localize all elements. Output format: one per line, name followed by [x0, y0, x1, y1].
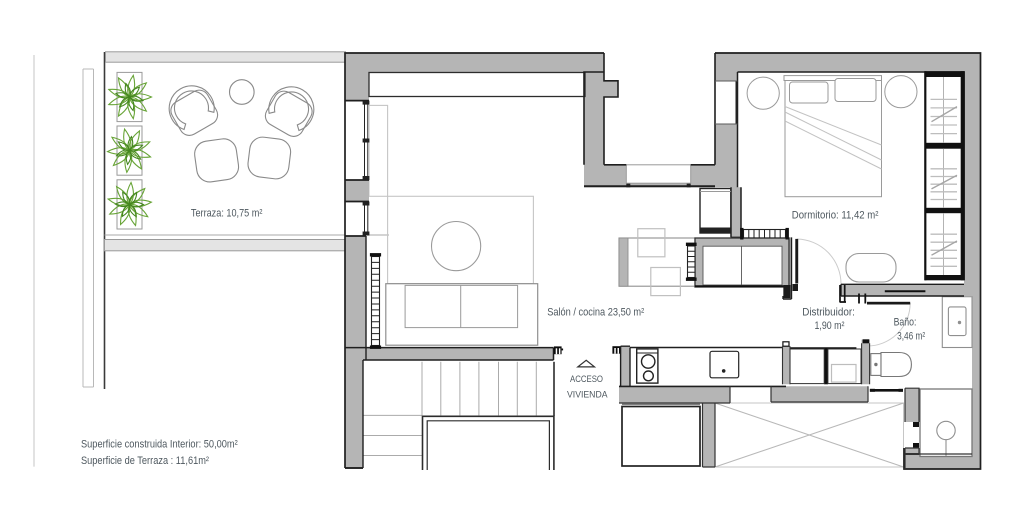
svg-text:Distribuidor:: Distribuidor: — [802, 306, 855, 318]
svg-text:Superficie construida Interior: Superficie construida Interior: 50,00m² — [81, 439, 238, 451]
svg-text:VIVIENDA: VIVIENDA — [567, 389, 608, 400]
svg-text:Superficie de Terraza : 11,61m: Superficie de Terraza : 11,61m² — [81, 455, 209, 467]
svg-text:ACCESO: ACCESO — [570, 374, 603, 385]
svg-text:Terraza: 10,75 m²: Terraza: 10,75 m² — [191, 207, 263, 219]
svg-text:Salón / cocina 23,50 m²: Salón / cocina 23,50 m² — [547, 307, 644, 319]
svg-text:Dormitorio: 11,42 m²: Dormitorio: 11,42 m² — [792, 210, 879, 222]
svg-text:Baño:: Baño: — [894, 317, 917, 329]
svg-text:3,46 m²: 3,46 m² — [897, 331, 925, 343]
svg-text:1,90 m²: 1,90 m² — [815, 320, 845, 332]
